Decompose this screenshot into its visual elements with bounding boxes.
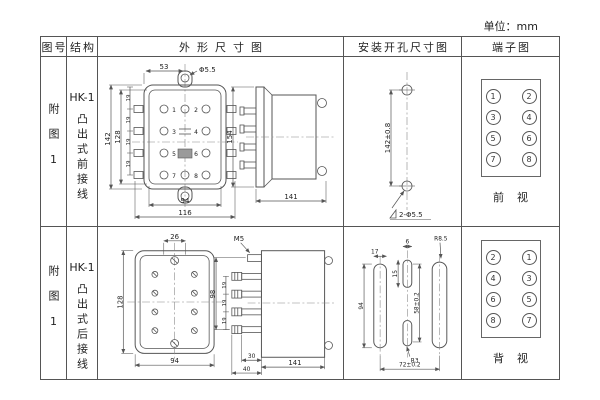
mounting-drawing-row1: 142±0.8 2-Φ5.5 — [347, 62, 459, 222]
dim-mid-span-row2: 58±0.2 — [414, 292, 420, 314]
dim-pitch1-row1: 19 — [126, 94, 132, 101]
dim-hole-pitch-row1: 142±0.8 — [384, 122, 392, 152]
terminal-pin: 7 — [486, 152, 501, 167]
col-header-figure: 图号 — [41, 37, 67, 57]
mounting-drawing-cell-row1: 142±0.8 2-Φ5.5 — [344, 57, 462, 227]
terminal-cell-row2: 2 1 4 3 6 5 8 7 背视 — [462, 227, 559, 379]
dim-depth-row2: 141 — [288, 359, 301, 367]
terminal-pin: 1 — [486, 89, 501, 104]
terminal-pin: 6 — [522, 131, 537, 146]
terminal-box-front: 1 2 3 4 5 6 7 8 — [481, 79, 541, 177]
dim-hole-dia-row1: Φ5.5 — [199, 66, 216, 74]
terminal-num-7: 7 — [172, 173, 176, 180]
terminal-pin: 8 — [522, 152, 537, 167]
dim-pitch2-row2: 19 — [222, 299, 228, 306]
dim-width-outer-row1: 116 — [178, 209, 192, 217]
terminal-pin: 3 — [486, 110, 501, 125]
mounting-drawing-cell-row2: 17 94 6 15 58±0.2 — [344, 227, 462, 379]
rear-front-view-row2: 26 — [116, 233, 222, 367]
dim-height-row2: 128 — [116, 295, 124, 308]
outline-drawing-cell-row1: 53 Φ5.5 — [98, 57, 344, 227]
terminal-pin: 5 — [522, 292, 537, 307]
dim-mid-slot-width-row2: 6 — [405, 240, 409, 246]
model-row2: HK-1 — [69, 261, 94, 274]
terminal-num-1: 1 — [172, 107, 176, 114]
terminal-pin: 8 — [486, 313, 501, 328]
terminal-caption-row2: 背视 — [480, 350, 541, 366]
dim-slot-height-row2: 94 — [359, 302, 365, 310]
dim-stud-span-row2: 98 — [209, 290, 217, 299]
dim-height-inner-row1: 128 — [114, 130, 122, 143]
spec-table: 图号 结构 外形尺寸图 安装开孔尺寸图 端子图 附图1 HK-1 凸出式前接线 — [40, 36, 560, 380]
terminal-caption-row1: 前视 — [480, 189, 541, 205]
dim-screw-row2: M5 — [234, 235, 244, 243]
terminal-num-4: 4 — [194, 129, 198, 136]
terminal-pin: 4 — [486, 271, 501, 286]
terminal-pin: 2 — [522, 89, 537, 104]
terminal-num-6: 6 — [194, 151, 198, 158]
structure-row1: 凸出式前接线 — [77, 113, 88, 203]
unit-note: 单位：mm — [484, 18, 538, 34]
dim-pitch3-row2: 19 — [222, 317, 228, 324]
terminal-pin: 5 — [486, 131, 501, 146]
terminal-pin: 7 — [522, 313, 537, 328]
structure-row2: 凸出式后接线 — [77, 283, 88, 373]
terminal-num-3: 3 — [172, 129, 176, 136]
terminal-num-2: 2 — [194, 107, 198, 114]
terminal-pin: 4 — [522, 110, 537, 125]
outline-drawing-row2: 26 — [99, 229, 342, 377]
dim-slot-width-row2: 17 — [371, 249, 379, 255]
datasheet-page: 单位：mm 图号 结构 外形尺寸图 安装开孔尺寸图 端子图 附图1 HK-1 凸… — [40, 36, 560, 380]
col-header-terminal: 端子图 — [462, 37, 559, 57]
dim-corner-radius-row2: R8.5 — [434, 237, 448, 243]
dim-width-row2: 94 — [170, 357, 179, 365]
terminal-pin: 6 — [486, 292, 501, 307]
dim-depth-a-row2: 30 — [248, 354, 256, 360]
terminal-num-5: 5 — [172, 151, 176, 158]
terminal-pin: 3 — [522, 271, 537, 286]
model-row1: HK-1 — [69, 91, 94, 104]
dim-top-span-row2: 26 — [170, 233, 179, 241]
dim-pitch1-row2: 19 — [222, 281, 228, 288]
dim-depth-b-row2: 40 — [243, 367, 251, 373]
figure-no-cell-row1: 附图1 — [41, 57, 67, 227]
outline-drawing-row1: 53 Φ5.5 — [98, 59, 343, 225]
terminal-num-8: 8 — [194, 173, 198, 180]
terminal-pin: 2 — [486, 250, 501, 265]
terminal-pin: 1 — [522, 250, 537, 265]
mounting-slots-row2: 17 94 6 15 58±0.2 — [359, 237, 448, 371]
col-header-structure: 结构 — [67, 37, 98, 57]
terminal-cell-row1: 1 2 3 4 5 6 7 8 前视 — [462, 57, 559, 227]
dim-depth-row1: 141 — [284, 193, 297, 201]
outline-drawing-cell-row2: 26 — [98, 227, 344, 379]
dim-width-inner-row1: 94 — [181, 197, 190, 205]
dim-pitch3-row1: 19 — [126, 138, 132, 145]
dim-pitch4-row1: 19 — [126, 160, 132, 167]
dim-span-row2: 72±0.2 — [399, 362, 421, 368]
dim-hole-note-row1: 2-Φ5.5 — [399, 211, 423, 219]
mounting-holes-row1: 142±0.8 2-Φ5.5 — [384, 72, 431, 220]
structure-cell-row1: HK-1 凸出式前接线 — [67, 57, 98, 227]
col-header-outline: 外形尺寸图 — [98, 37, 344, 57]
structure-cell-row2: HK-1 凸出式后接线 — [67, 227, 98, 379]
dim-top-span-row1: 53 — [160, 63, 169, 71]
mounting-drawing-row2: 17 94 6 15 58±0.2 — [347, 229, 459, 377]
rear-side-view-row2: M5 19 19 19 — [209, 235, 336, 375]
dim-side-height-row1: 154 — [226, 129, 234, 143]
side-view-row1: 154 141 — [226, 87, 334, 203]
dim-mid-slot-len-row2: 15 — [393, 270, 399, 278]
figure-no-row1: 附图1 — [48, 103, 59, 180]
figure-no-row2: 附图1 — [48, 265, 59, 342]
terminal-box-rear: 2 1 4 3 6 5 8 7 — [481, 240, 541, 338]
dim-height-outer-row1: 142 — [104, 132, 112, 145]
dim-pitch2-row1: 19 — [126, 116, 132, 123]
figure-no-cell-row2: 附图1 — [41, 227, 67, 379]
front-view-row1: 53 Φ5.5 — [104, 63, 238, 219]
col-header-mounting: 安装开孔尺寸图 — [344, 37, 462, 57]
rear-studs-row2 — [232, 272, 262, 333]
